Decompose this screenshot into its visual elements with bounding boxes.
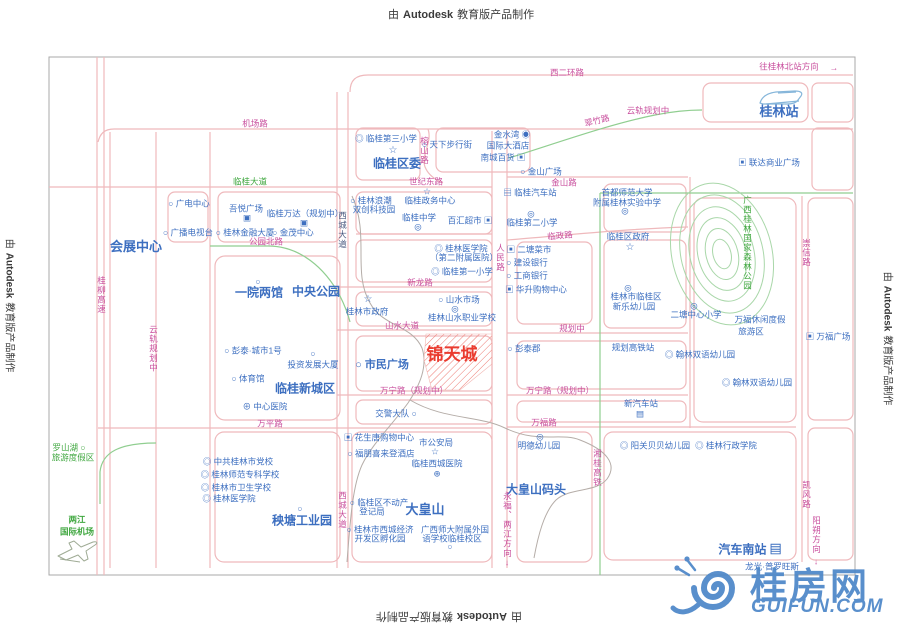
map-label: 临桂新城区 <box>275 383 335 396</box>
map-label: 中央公园 <box>292 286 340 299</box>
map-label: 锦天城 <box>427 346 478 364</box>
map-label: ◎ 翰林双语幼儿园 <box>665 351 735 360</box>
map-label: 临政路 <box>547 230 573 241</box>
map-label: 桂林市政府 <box>346 308 389 317</box>
map-label: ▣ 二塘菜市 <box>507 246 552 255</box>
map-label: ○ 体育馆 <box>232 375 265 384</box>
map-label: 西城大道 <box>338 491 347 529</box>
map-label: ○ 广电中心 <box>168 200 210 209</box>
map-label: ○ 彭泰·城市1号 <box>224 347 282 356</box>
map-label: ⊕ <box>433 470 440 479</box>
map-label: 双创科技园 <box>353 206 396 215</box>
map-label: 旅游度假区 <box>52 454 95 463</box>
map-label: ☆ <box>626 243 635 254</box>
map-label: 西二环路 <box>550 69 584 78</box>
map-label: ⊕ 中心医院 <box>243 403 288 412</box>
map-label: 云轨规划中 <box>149 325 158 373</box>
map-label: ☆ <box>364 295 373 306</box>
map-label: 国际机场 <box>60 528 94 537</box>
plot-stamp-bottom: 由Autodesk教育版产品制作 <box>376 597 534 631</box>
map-label: 大皇山 <box>405 503 444 517</box>
map-label: 临桂大道 <box>233 178 267 187</box>
map-label: 凯风路 <box>802 481 811 510</box>
map-label: 桂林站 <box>759 105 798 119</box>
map-label: ○ 福朋喜来登酒店 <box>348 450 415 459</box>
map-label: 大皇山码头 <box>506 484 566 497</box>
map-label: 万宁路（规划中） <box>526 387 594 396</box>
map-label: 万宁路（规划中） <box>380 387 448 396</box>
map-label: ◎ 桂林市卫生学校 <box>201 484 271 493</box>
map-label: ○ 彭泰郡 <box>508 345 541 354</box>
map-label: 世纪东路 <box>409 178 443 187</box>
map-label: 国际大酒店 <box>487 142 530 151</box>
watermark-domain: GUIFUN.COM <box>751 596 883 618</box>
map-label: 会展中心 <box>110 240 162 254</box>
map-label: 新乐幼儿园 <box>613 303 656 312</box>
map-label: ◎ 阳关贝贝幼儿园 <box>620 442 690 451</box>
map-label: 临桂区委 <box>373 158 421 171</box>
map-label: ▣ 花生唐购物中心 <box>344 434 414 443</box>
map-label: 百汇超市 ▣ <box>448 217 493 226</box>
stamp-suffix: 教育版产品制作 <box>376 610 453 622</box>
map-label: ◎ 桂林医学院 <box>202 495 255 504</box>
plot-stamp-right: 由Autodesk教育版产品制作 <box>871 261 900 406</box>
plot-stamp-left: 由Autodesk教育版产品制作 <box>0 228 30 373</box>
map-label: 临桂西城医院 <box>411 460 462 469</box>
map-label: 两江 <box>68 516 85 525</box>
map-label: 翠竹路 <box>584 114 611 129</box>
map-label: ▣ 华升购物中心 <box>505 286 567 295</box>
map-label: ◎ 临桂第一小学 <box>431 268 493 277</box>
map-label: 往桂林北站方向 <box>759 63 819 72</box>
map-label: ▣ 万福广场 <box>806 333 851 342</box>
stamp-prefix: 由 <box>882 272 893 282</box>
map-label: ◎ <box>414 223 421 232</box>
map-label: ○ <box>447 543 452 552</box>
map-label: 旅游区 <box>738 328 764 337</box>
map-label: 二塘中心小学 <box>670 311 721 320</box>
map-label: 桂林市临桂区 <box>610 293 661 302</box>
map-label: 首都师范大学 <box>601 189 652 198</box>
stamp-suffix: 教育版产品制作 <box>4 302 15 372</box>
map-label: 山水大道 <box>385 322 419 331</box>
map-label: 万平路 <box>257 420 283 429</box>
map-label: ◎ <box>621 207 628 216</box>
map-label: 湘桂高铁 <box>593 449 602 487</box>
map-label: 开发区孵化园 <box>354 535 405 544</box>
stamp-brand: Autodesk <box>403 9 453 21</box>
map-label: ◎ 桂林行政学院 <box>695 442 757 451</box>
map-label: 万福休闲度假 <box>734 316 785 325</box>
map-label: ○ 天下步行街 <box>422 141 472 150</box>
map-label: 临桂区政府 <box>607 233 650 242</box>
map-label: ○ <box>297 505 302 514</box>
watermark-snail-icon <box>662 548 752 628</box>
stamp-suffix: 教育版产品制作 <box>882 335 893 405</box>
map-label: 登记局 <box>359 508 385 517</box>
map-label: ◎ 桂林师范专科学校 <box>201 471 280 480</box>
watermark-logo: 桂房网 GUIFUN.COM <box>662 548 892 628</box>
map-label: 秧塘工业园 <box>272 515 332 528</box>
map-label: 金山路 <box>551 179 577 188</box>
map-label: → <box>830 64 839 73</box>
map-label: ○ 市民广场 <box>355 360 409 372</box>
map-label: ○ 山水市场 <box>438 296 480 305</box>
map-label: ↓ <box>505 559 509 568</box>
map-label: 云轨规划中 <box>627 107 670 116</box>
map-label: 规划中 <box>559 325 585 334</box>
map-label: ☆ <box>431 447 439 456</box>
map-label: 崇信路 <box>802 239 811 268</box>
map-label: ▣ <box>300 219 308 228</box>
map-label: ▣ <box>243 214 251 223</box>
map-label: 永福、两江方向 <box>503 492 512 559</box>
map-label: 一院两馆 <box>235 287 283 300</box>
plot-stamp-top: 由Autodesk教育版产品制作 <box>376 0 534 34</box>
map-label: 金水湾 ◉ <box>494 131 530 140</box>
stamp-brand: Autodesk <box>457 610 507 622</box>
map-label: 西城大道 <box>338 211 347 249</box>
map-labels: 西二环路往桂林北站方向→机场路云轨规划中翠竹路桂林站◎ 临桂第三小学☆临桂区委榕… <box>0 0 900 631</box>
map-label: 南城百货 ▣ <box>481 154 526 163</box>
map-label: 桂柳高速 <box>97 276 106 314</box>
map-label: ○ 建设银行 <box>506 259 548 268</box>
map-label: 新龙路 <box>407 279 433 288</box>
map-label: ▣ 联达商业广场 <box>738 159 800 168</box>
map-label: 新汽车站 <box>624 400 658 409</box>
map-label: ○ 金山广场 <box>520 168 562 177</box>
map-label: 临桂政务中心 <box>404 197 455 206</box>
map-label: ○ 广播电视台 <box>163 229 213 238</box>
map-label: 广西桂林国家森林公园 <box>743 196 752 291</box>
map-label: 桂林山水职业学校 <box>428 314 496 323</box>
map-label: ◎ 翰林双语幼儿园 <box>722 379 792 388</box>
stamp-brand: Autodesk <box>4 253 15 299</box>
stamp-prefix: 由 <box>388 9 399 21</box>
map-label: 万福路 <box>531 419 557 428</box>
map-label: （第二附属医院） <box>430 254 498 263</box>
stamp-brand: Autodesk <box>882 286 893 332</box>
map-label: 罗山湖 ○ <box>53 444 86 453</box>
stamp-prefix: 由 <box>511 610 522 622</box>
stamp-suffix: 教育版产品制作 <box>457 9 534 21</box>
map-label: ▤ <box>636 410 644 419</box>
stamp-prefix: 由 <box>4 239 15 249</box>
map-label: ◎ 临桂第三小学 <box>355 135 417 144</box>
map-label: 机场路 <box>242 120 268 129</box>
map-label: 规划高铁站 <box>612 344 655 353</box>
map-label: ☆ <box>389 146 398 157</box>
map-label: ○ <box>310 350 315 359</box>
map-label: ◎ 中共桂林市党校 <box>203 458 273 467</box>
map-label: 公园北路 <box>249 238 283 247</box>
map-page: 西二环路往桂林北站方向→机场路云轨规划中翠竹路桂林站◎ 临桂第三小学☆临桂区委榕… <box>0 0 900 631</box>
map-label: ▤ 临桂汽车站 <box>503 189 556 198</box>
map-label: ○ 工商银行 <box>506 272 548 281</box>
map-label: 明德幼儿园 <box>518 442 561 451</box>
map-label: 投资发展大厦 <box>287 361 338 370</box>
map-label: 交警大队 ○ <box>375 410 417 419</box>
map-label: 临桂第二小学 <box>506 219 557 228</box>
